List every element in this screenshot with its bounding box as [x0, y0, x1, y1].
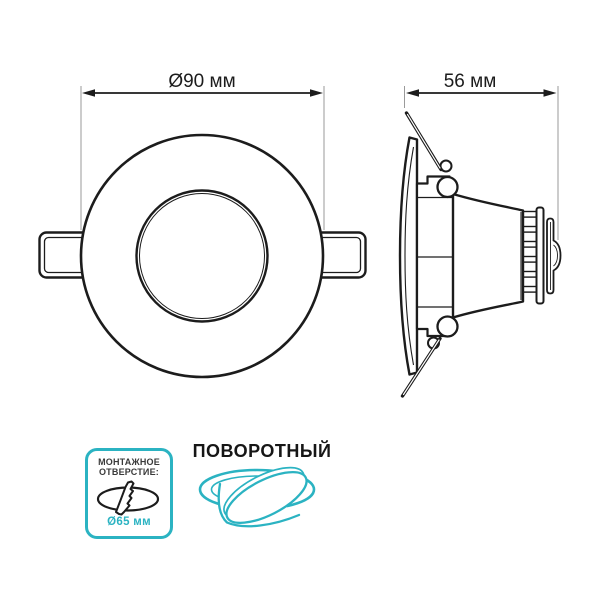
swivel-feature-label: ПОВОРОТНЫЙ — [189, 441, 335, 462]
mounting-hole-badge: МОНТАЖНОЕ ОТВЕРСТИЕ: Ø65 мм — [85, 448, 173, 539]
side-view: 56 мм — [400, 71, 561, 396]
rear-cone — [453, 194, 523, 318]
rear-plate — [537, 208, 544, 304]
lamp-opening-circle — [137, 191, 268, 322]
depth-dimension-label: 56 мм — [444, 71, 497, 92]
technical-drawing: Ø90 мм 5 — [0, 0, 600, 440]
front-view: Ø90 мм — [40, 71, 366, 377]
mounting-hole-title: МОНТАЖНОЕ ОТВЕРСТИЕ: — [88, 458, 170, 477]
drill-hole-icon — [88, 478, 172, 516]
heatsink-ribs — [524, 212, 537, 293]
bezel-profile — [400, 138, 417, 375]
tilting-spotlight-icon — [196, 464, 322, 542]
mounting-hole-diameter: Ø65 мм — [88, 516, 170, 528]
mounting-hole-title-line2: ОТВЕРСТИЕ: — [88, 468, 170, 478]
spotlight-spec-sheet: Ø90 мм 5 — [0, 0, 600, 600]
diameter-dimension-label: Ø90 мм — [168, 71, 235, 92]
lamp-body — [417, 177, 454, 337]
